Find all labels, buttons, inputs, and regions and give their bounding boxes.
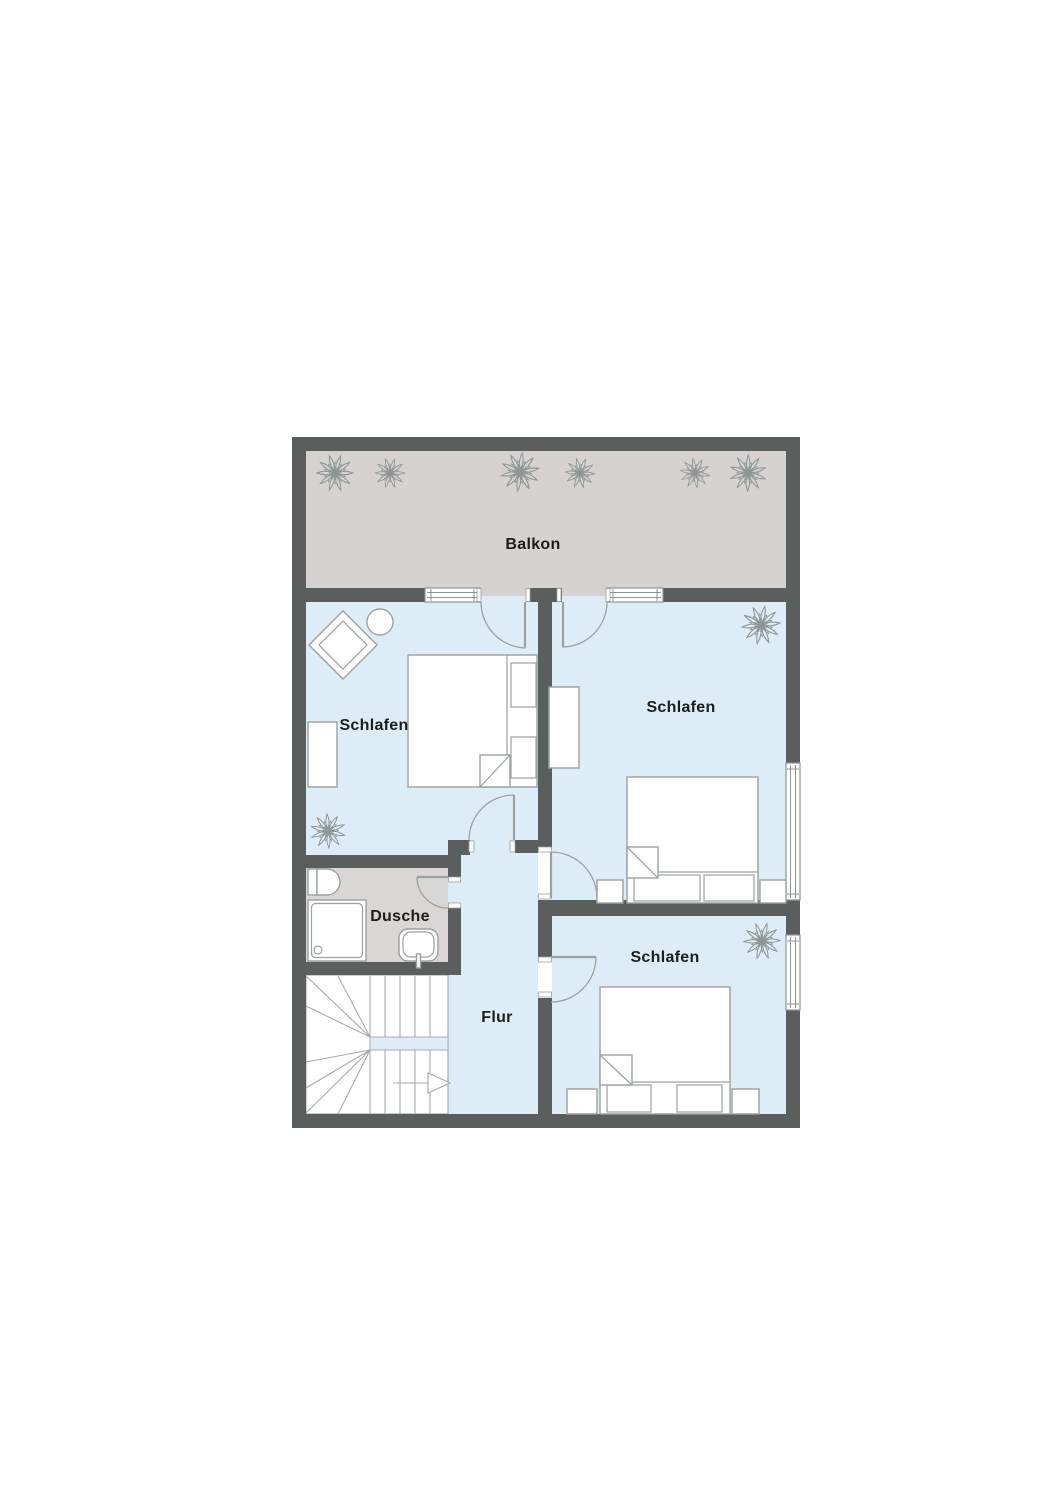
balcony-door-threshold bbox=[480, 588, 527, 596]
balcony-door-threshold bbox=[562, 588, 607, 596]
floor-plan: Balkon Schlafen Schlafen Schlafen Dusche… bbox=[0, 0, 1060, 1500]
outer-wall-bottom bbox=[292, 1114, 800, 1128]
toilet-icon bbox=[308, 869, 340, 895]
nightstand-icon bbox=[760, 880, 786, 903]
shower-room-east-wall bbox=[448, 908, 461, 962]
outer-wall-left bbox=[292, 437, 306, 1128]
bedroom-left-south-wall bbox=[448, 840, 470, 855]
window-icon bbox=[786, 763, 800, 900]
bedroom-top-right-label: Schlafen bbox=[646, 699, 715, 716]
hallway-floor bbox=[448, 853, 538, 1114]
outer-wall-top bbox=[292, 437, 800, 451]
window-icon bbox=[786, 935, 800, 1010]
nightstand-icon bbox=[567, 1089, 597, 1114]
double-bed-icon bbox=[627, 777, 758, 903]
hallway-label: Flur bbox=[481, 1009, 512, 1026]
wardrobe-icon bbox=[549, 687, 579, 768]
shower-tray-icon bbox=[308, 900, 366, 961]
floor-plan-page: Balkon Schlafen Schlafen Schlafen Dusche… bbox=[0, 0, 1060, 1500]
shower-room-east-wall bbox=[448, 855, 461, 877]
side-table-icon bbox=[367, 609, 393, 635]
balcony-door-threshold bbox=[562, 596, 607, 602]
wardrobe-icon bbox=[308, 722, 337, 787]
double-bed-icon bbox=[408, 655, 537, 787]
bedroom-left-label: Schlafen bbox=[339, 717, 408, 734]
bedroom-bottom-right-label: Schlafen bbox=[630, 949, 699, 966]
window-icon bbox=[607, 588, 663, 602]
balcony-floor bbox=[306, 451, 786, 588]
nightstand-icon bbox=[597, 880, 623, 903]
balcony-wall bbox=[306, 588, 425, 602]
window-icon bbox=[425, 588, 480, 602]
double-bed-icon bbox=[600, 987, 730, 1114]
hallway-east-wall bbox=[538, 916, 552, 957]
bedroom-left-south-wall bbox=[515, 840, 538, 853]
hallway-east-wall bbox=[538, 998, 552, 1114]
nightstand-icon bbox=[732, 1089, 759, 1114]
stairs-icon bbox=[306, 975, 450, 1114]
shower-room-label: Dusche bbox=[370, 908, 430, 925]
balcony-door-threshold bbox=[480, 596, 527, 602]
shower-room-south-wall bbox=[292, 962, 461, 975]
balcony-wall bbox=[663, 588, 786, 602]
shower-room-north-wall bbox=[292, 855, 461, 868]
balcony-label: Balkon bbox=[505, 536, 560, 553]
